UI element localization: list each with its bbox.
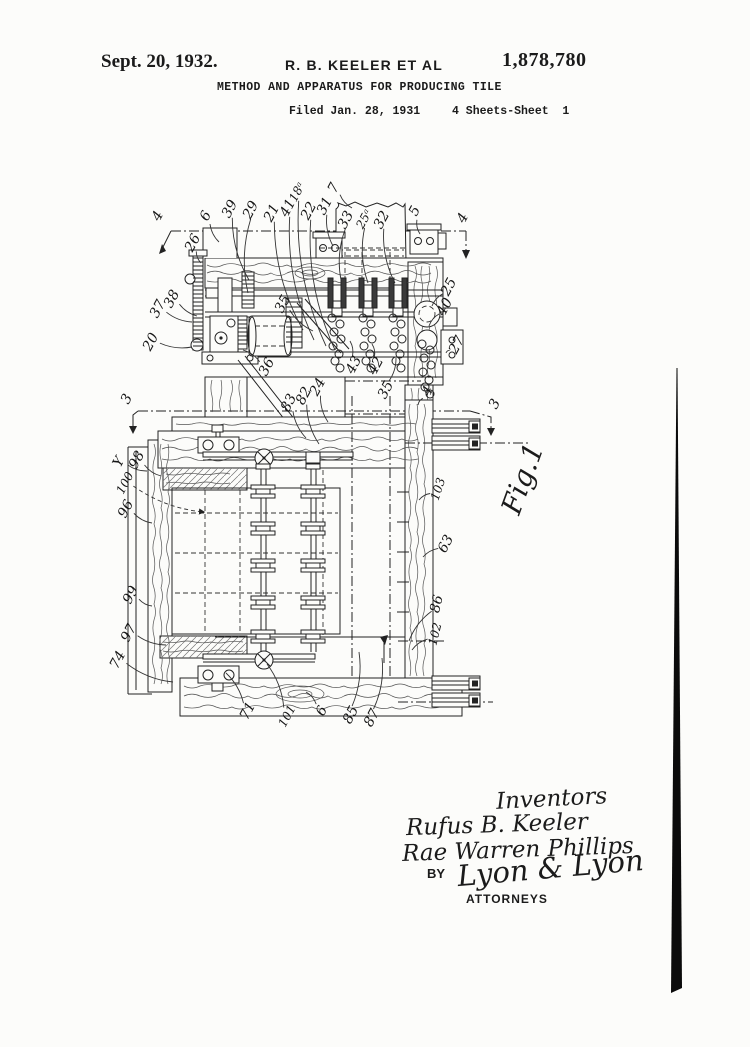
ref-label-3: 3 [118, 391, 136, 406]
attorneys-label: ATTORNEYS [466, 892, 548, 906]
scan-artifact-bar [671, 368, 682, 993]
hatched-shelves [160, 468, 247, 658]
ref-label-29: 29 [239, 198, 262, 222]
ref-label-100: 100 [113, 469, 136, 496]
ref-label-39: 39 [219, 197, 242, 220]
ref-label-3: 3 [486, 396, 504, 411]
ref-label-7: 7 [325, 180, 343, 195]
lower-mold-assembly [128, 396, 528, 716]
ref-label-35: 35 [375, 378, 398, 401]
ref-label-4: 4 [148, 208, 167, 224]
ref-label-31: 31 [314, 194, 336, 217]
ref-label-98: 98 [126, 448, 149, 471]
ref-label-4: 4 [453, 210, 472, 226]
ref-label-20: 20 [139, 330, 162, 354]
ref-label-36: 36 [256, 355, 279, 378]
ref-label-99: 99 [120, 583, 143, 606]
shaft-bearing [218, 278, 232, 312]
ref-label-Y: Y [110, 453, 129, 470]
step-block-6 [203, 228, 237, 258]
patent-drawing-fig1: 463929214118ᵃ223173325ᵃ32542637382035362… [0, 0, 750, 1047]
ref-label-63: 63 [435, 532, 458, 555]
ref-label-86: 86 [427, 593, 447, 614]
ref-label-97: 97 [118, 621, 141, 644]
ref-label-96: 96 [115, 497, 138, 520]
by-label: BY [427, 866, 445, 881]
ref-label-5: 5 [406, 203, 424, 218]
ref-label-74: 74 [107, 648, 129, 671]
marker-pin [380, 635, 388, 663]
patent-sheet-page: Sept. 20, 1932. R. B. KEELER ET AL 1,878… [0, 0, 750, 1047]
roller-cylinder [248, 316, 292, 356]
ref-label-6: 6 [197, 208, 215, 223]
